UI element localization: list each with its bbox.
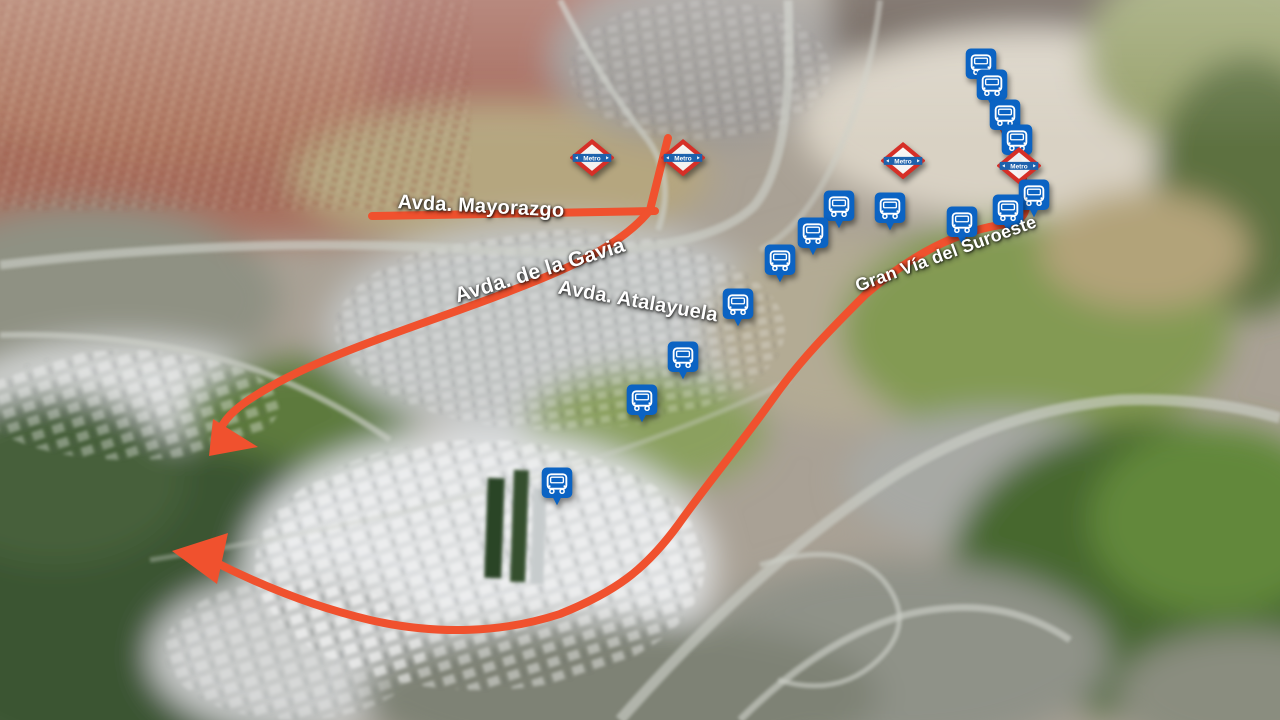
bus-icon	[873, 191, 907, 232]
metro-logo-text: Metro	[674, 155, 691, 162]
bus-icon	[666, 340, 700, 381]
bus-icon	[625, 383, 659, 424]
bus-stop-marker[interactable]	[763, 243, 797, 289]
metro-station-marker[interactable]: Metro	[570, 139, 614, 181]
bus-stop-marker[interactable]	[796, 216, 830, 262]
bus-icon	[721, 287, 755, 328]
bus-stop-marker[interactable]	[945, 205, 979, 251]
metro-logo-icon: Metro	[881, 142, 925, 179]
bus-icon	[945, 205, 979, 246]
bus-stop-marker[interactable]	[540, 466, 574, 512]
metro-logo-icon: Metro	[661, 139, 705, 176]
bus-icon	[796, 216, 830, 257]
aerial-map: Metro Metro Metro	[0, 0, 1280, 720]
bus-stop-marker[interactable]	[625, 383, 659, 429]
metro-logo-icon: Metro	[570, 139, 614, 176]
metro-station-marker[interactable]: Metro	[661, 139, 705, 181]
metro-logo-text: Metro	[1010, 163, 1027, 170]
bus-stop-marker[interactable]	[721, 287, 755, 333]
bus-icon	[763, 243, 797, 284]
bus-icon	[991, 193, 1025, 234]
bus-stop-marker[interactable]	[873, 191, 907, 237]
bus-stop-marker[interactable]	[991, 193, 1025, 239]
metro-station-marker[interactable]: Metro	[881, 142, 925, 184]
bus-stop-marker[interactable]	[666, 340, 700, 386]
metro-logo-text: Metro	[894, 158, 911, 165]
marker-layer: Metro Metro Metro	[0, 0, 1280, 720]
metro-logo-text: Metro	[583, 155, 600, 162]
bus-icon	[540, 466, 574, 507]
